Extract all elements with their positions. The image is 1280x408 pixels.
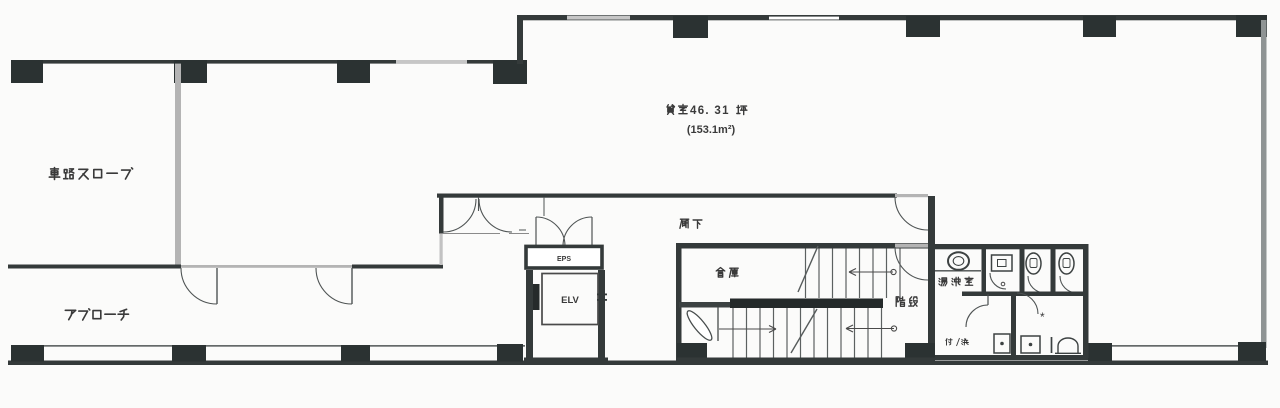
svg-text:46. 31: 46. 31 (690, 105, 730, 117)
svg-text:*: * (1040, 310, 1045, 324)
svg-text:(153.1m²): (153.1m²) (687, 124, 736, 136)
svg-text:EPS: EPS (557, 256, 571, 263)
svg-text:ELV: ELV (561, 295, 579, 306)
